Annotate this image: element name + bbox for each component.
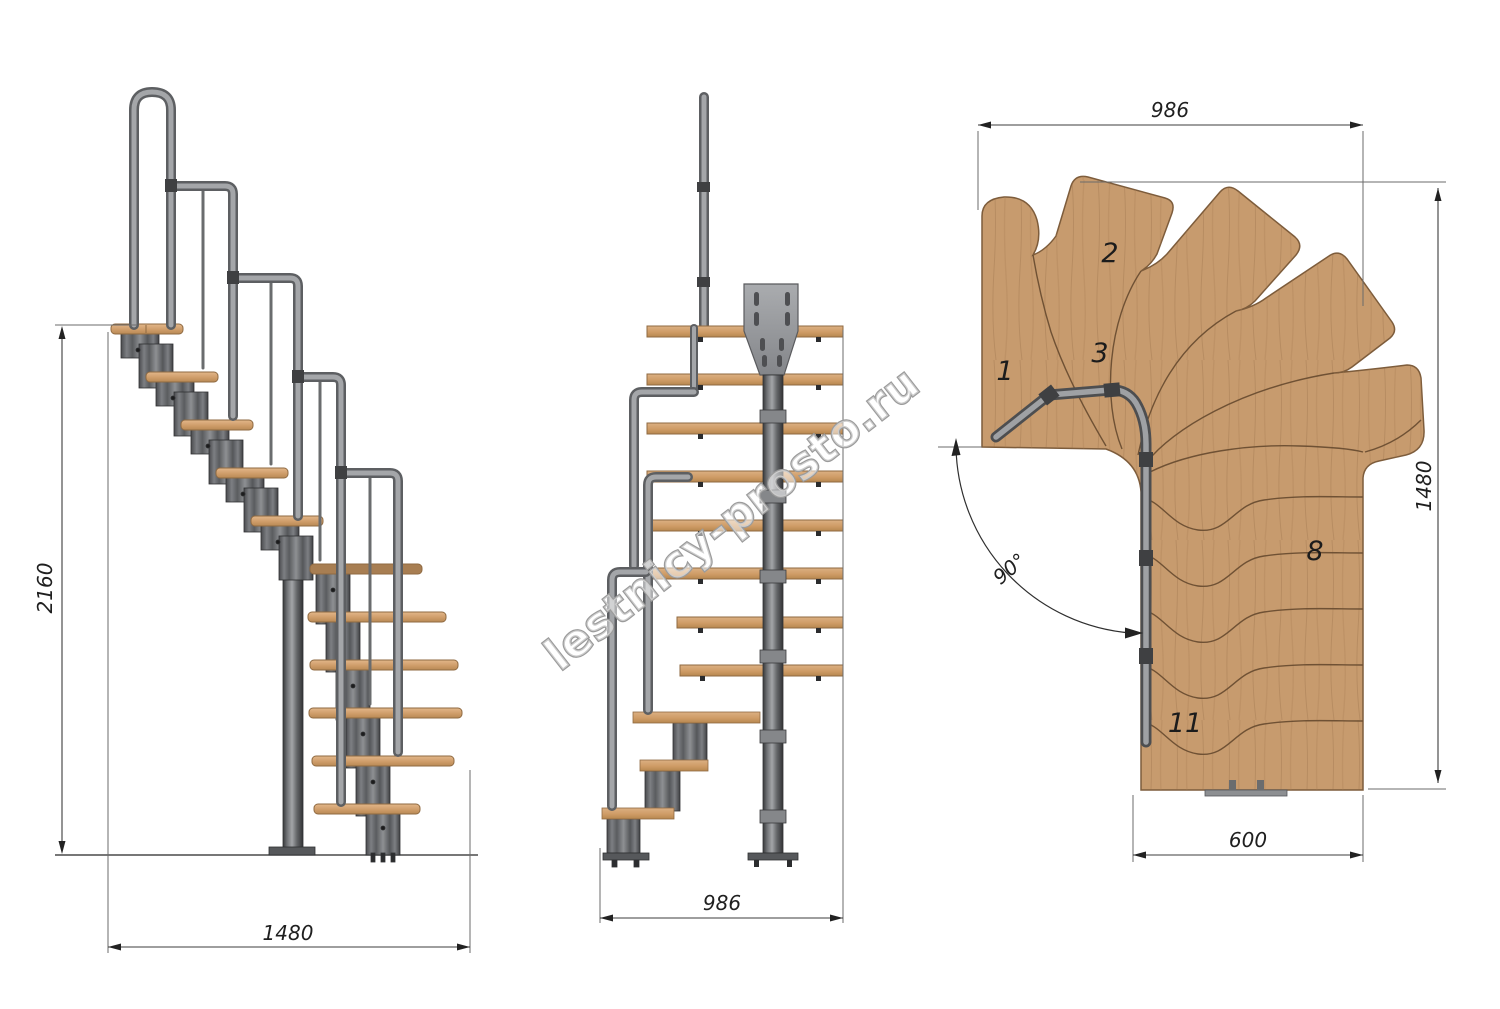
- column-coupler: [760, 650, 786, 663]
- tread: [251, 516, 323, 526]
- staircase-drawing: 2160 1480: [0, 0, 1500, 1009]
- dimension-plan-flight-width: 600: [1133, 795, 1363, 862]
- dim-plan-flight-width-label: 600: [1229, 828, 1267, 852]
- rail-connector: [697, 182, 710, 192]
- turn-angle-annotation: 90°: [938, 438, 1143, 639]
- tread: [146, 372, 218, 382]
- side-modules-upper: [121, 334, 313, 580]
- rail-connector: [1103, 382, 1120, 397]
- tread: [680, 665, 843, 676]
- turn-angle-label: 90°: [988, 548, 1031, 589]
- step-number-2: 2: [1101, 238, 1118, 269]
- rail-connector: [292, 370, 304, 383]
- column-coupler: [760, 570, 786, 583]
- step-number-11: 11: [1168, 708, 1202, 739]
- rail-connector: [227, 271, 239, 284]
- dim-plan-depth-label: 1480: [1412, 461, 1436, 512]
- tread: [647, 374, 843, 385]
- tread: [640, 760, 708, 771]
- column-base-flange: [748, 853, 798, 860]
- watermark-text: lestnicy-prosto.ru: [535, 357, 929, 681]
- step-number-3: 3: [1091, 338, 1108, 369]
- tread: [308, 612, 446, 622]
- technical-drawing-sheet: 2160 1480: [0, 0, 1500, 1009]
- side-elevation-view: 2160 1480: [33, 92, 478, 953]
- front-lower-steps: [602, 712, 760, 867]
- dim-side-width-label: 1480: [263, 921, 314, 945]
- rail-connector: [1139, 648, 1153, 664]
- rail-connector: [697, 277, 710, 287]
- dimension-side-height: 2160: [33, 325, 137, 854]
- front-newel-post: [697, 97, 710, 330]
- tread: [309, 708, 462, 718]
- rail-connector: [1139, 452, 1153, 467]
- rail-connector: [165, 179, 177, 192]
- column-coupler: [760, 730, 786, 743]
- step-number-8: 8: [1306, 536, 1323, 567]
- step-number-1: 1: [996, 356, 1013, 387]
- column-coupler: [760, 410, 786, 423]
- tread: [310, 564, 422, 574]
- tread: [310, 660, 458, 670]
- tread: [181, 420, 253, 430]
- rail-connector: [335, 466, 347, 479]
- support-column: [283, 575, 303, 853]
- tread: [314, 804, 420, 814]
- support-base-flange: [269, 847, 315, 855]
- tread: [312, 756, 454, 766]
- tread: [677, 617, 843, 628]
- plan-view: 1 2 3 8 11 90° 986: [938, 98, 1446, 862]
- dim-side-height-label: 2160: [33, 563, 57, 614]
- wall-mounting-plate: [744, 284, 798, 375]
- handrail-loop: [134, 92, 171, 325]
- dim-plan-width-label: 986: [1151, 98, 1189, 122]
- column-coupler: [760, 810, 786, 823]
- rail-connector: [1139, 550, 1153, 566]
- tread: [216, 468, 288, 478]
- tread: [633, 712, 760, 723]
- dim-front-width-label: 986: [703, 891, 741, 915]
